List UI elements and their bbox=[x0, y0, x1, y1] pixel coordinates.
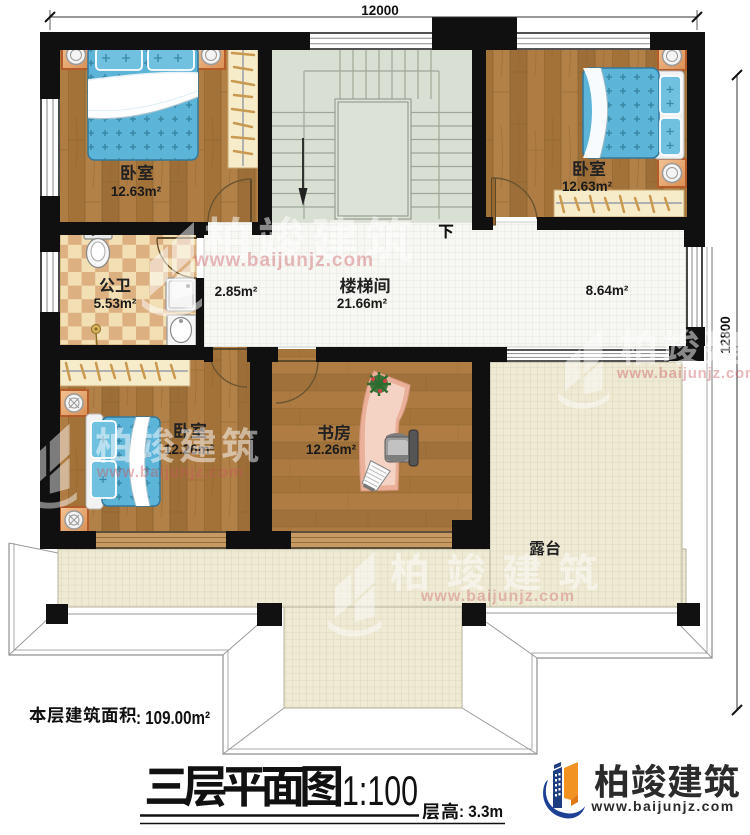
svg-text:12000: 12000 bbox=[361, 3, 399, 18]
svg-text:: 109.00m²: : 109.00m² bbox=[136, 708, 210, 728]
svg-text:www.baijunjz.com: www.baijunjz.com bbox=[193, 250, 374, 271]
svg-text:8.64m²: 8.64m² bbox=[586, 283, 629, 298]
svg-text:2.85m²: 2.85m² bbox=[215, 284, 258, 299]
svg-text:www.baijunjz.com: www.baijunjz.com bbox=[96, 464, 244, 481]
svg-text:www.baijunjz.com: www.baijunjz.com bbox=[616, 365, 750, 382]
svg-text:12.63m²: 12.63m² bbox=[562, 179, 613, 194]
svg-text:: 3.3m: : 3.3m bbox=[459, 802, 503, 821]
svg-text:12.63m²: 12.63m² bbox=[111, 184, 162, 199]
svg-text:21.66m²: 21.66m² bbox=[337, 296, 388, 311]
svg-text:www.baijunjz.com: www.baijunjz.com bbox=[420, 588, 575, 605]
svg-text:12.26m²: 12.26m² bbox=[306, 442, 357, 457]
svg-text:1:100: 1:100 bbox=[342, 767, 418, 814]
svg-text:www.baijunjz.com: www.baijunjz.com bbox=[590, 798, 734, 814]
svg-text:5.53m²: 5.53m² bbox=[94, 296, 137, 311]
